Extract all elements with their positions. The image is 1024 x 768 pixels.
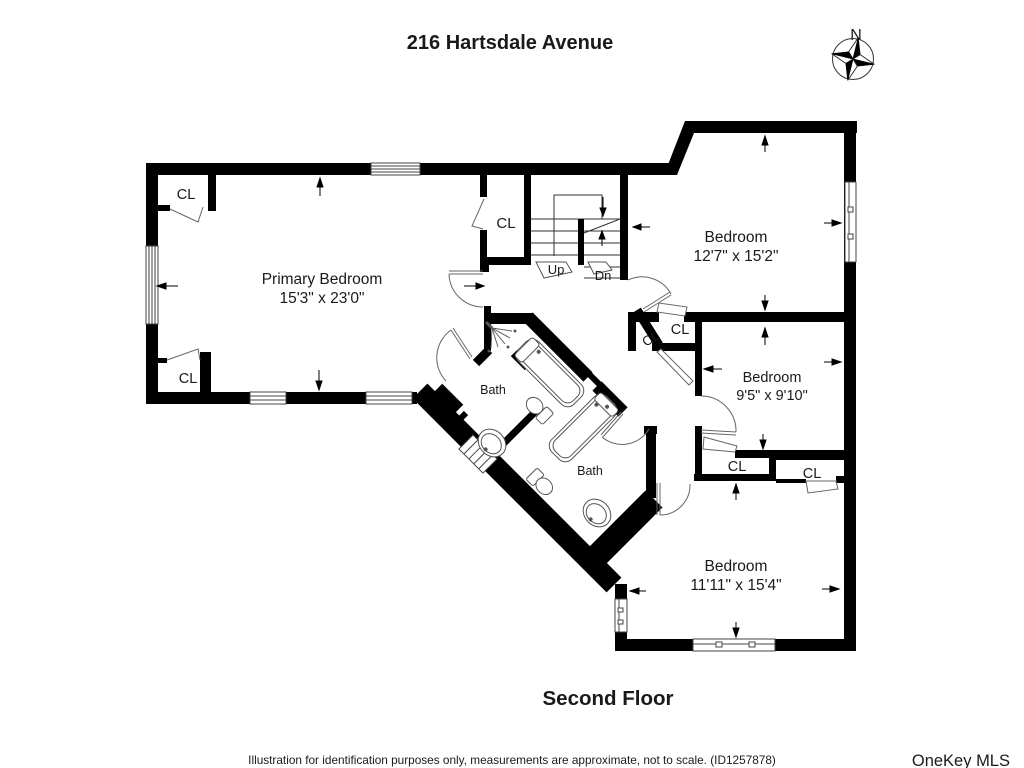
svg-text:12'7" x 15'2": 12'7" x 15'2" [693,248,778,265]
svg-text:CL: CL [179,371,198,387]
svg-text:Bedroom: Bedroom [705,229,768,246]
svg-text:Up: Up [548,262,565,277]
svg-text:216 Hartsdale Avenue: 216 Hartsdale Avenue [407,32,613,54]
svg-text:Bedroom: Bedroom [705,558,768,575]
svg-text:Second Floor: Second Floor [543,687,674,710]
svg-text:Dn: Dn [595,268,612,283]
svg-text:OneKey MLS: OneKey MLS [912,752,1010,768]
svg-text:Illustration for identificatio: Illustration for identification purposes… [248,753,776,767]
svg-text:Bath: Bath [577,464,603,478]
svg-text:CL: CL [803,466,822,482]
svg-text:Bath: Bath [480,383,506,397]
svg-text:CL: CL [177,187,196,203]
svg-text:15'3" x 23'0": 15'3" x 23'0" [279,290,364,307]
svg-text:Bedroom: Bedroom [743,370,802,386]
svg-text:CL: CL [496,215,515,232]
svg-text:CL: CL [728,459,747,475]
svg-text:Primary Bedroom: Primary Bedroom [262,271,383,288]
svg-text:9'5" x 9'10": 9'5" x 9'10" [736,388,807,404]
svg-text:CL: CL [671,322,690,338]
svg-text:11'11" x 15'4": 11'11" x 15'4" [690,577,781,594]
